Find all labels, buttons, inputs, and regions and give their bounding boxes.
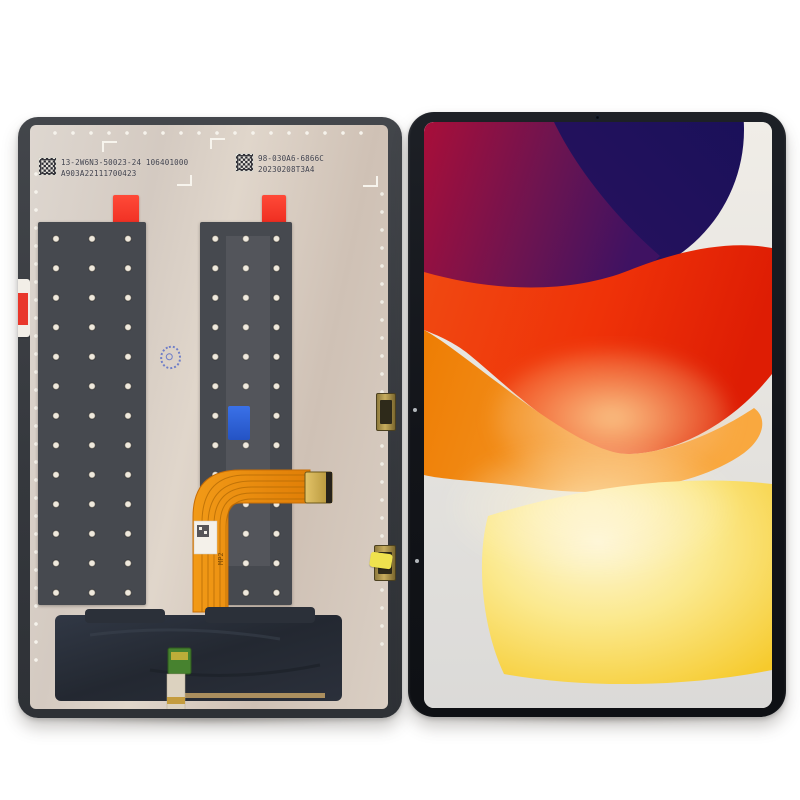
- left-pull-tab-red: [18, 293, 28, 325]
- yellow-adhesive-tab: [369, 552, 393, 570]
- flex-connector-edge: [326, 472, 332, 503]
- bezel-dot: [415, 559, 419, 563]
- left-pull-tab: [18, 279, 30, 337]
- product-photo: 13-2W6N3-50023-24 106401000A903A22111700…: [0, 0, 800, 800]
- lcd-back-surface: 13-2W6N3-50023-24 106401000A903A22111700…: [30, 125, 388, 709]
- flex-and-cover-art: MP2: [30, 125, 388, 709]
- tablet-front-panel: [408, 112, 786, 717]
- driver-cover: [55, 615, 342, 701]
- wallpaper-cream-glow: [452, 444, 732, 572]
- bezel-dot: [413, 408, 417, 412]
- tablet-screen: [424, 122, 772, 708]
- flex-marking: MP2: [217, 552, 225, 565]
- edge-connector-top: [376, 393, 396, 431]
- touch-ic-pcb: [168, 648, 191, 674]
- connector-slot: [380, 400, 392, 424]
- front-camera-icon: [595, 115, 600, 120]
- contact-strip: [180, 693, 325, 698]
- driver-cover-tab: [205, 607, 315, 623]
- pcb-pads: [171, 652, 188, 660]
- flex-tail-contacts: [167, 697, 185, 704]
- flex-label-qr-icon: [197, 525, 209, 537]
- lcd-back-panel: 13-2W6N3-50023-24 106401000A903A22111700…: [18, 117, 402, 718]
- driver-cover-tab: [85, 609, 165, 623]
- wallpaper-art: [424, 122, 772, 708]
